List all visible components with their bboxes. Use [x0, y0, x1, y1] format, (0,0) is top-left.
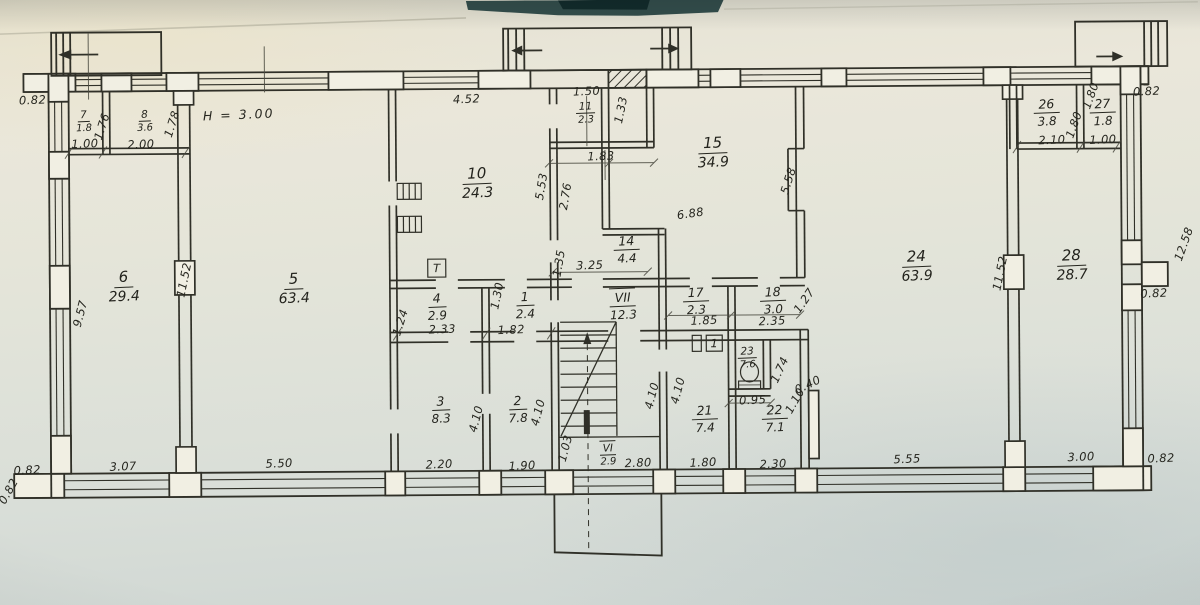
dimension-label: 5.58 — [777, 166, 799, 196]
room-area: 63.4 — [278, 290, 310, 307]
dimension-label: 0.82 — [1133, 84, 1161, 99]
room-number: 3 — [431, 393, 450, 411]
label-layer: 71.883.6629.4563.41024.3112.31534.9144.4… — [0, 0, 1200, 605]
room-area: 3.6 — [137, 122, 153, 134]
room-number: VI — [599, 440, 616, 456]
dimension-label: 2.10 — [1038, 132, 1066, 147]
dimension-label: 2.80 — [624, 455, 652, 470]
room-area: 12.3 — [610, 307, 637, 322]
room-label-7: 71.8 — [75, 105, 92, 135]
room-label-4: 42.9 — [427, 289, 447, 323]
dimension-label: 0.95 — [739, 392, 767, 407]
dimension-label: 11.52 — [989, 255, 1010, 292]
room-label-2: 27.8 — [508, 392, 528, 426]
room-label-VII: VII12.3 — [609, 287, 637, 322]
room-area: 2.9 — [428, 308, 448, 323]
dimension-label: 12.58 — [1171, 225, 1196, 263]
room-label-10: 1024.3 — [461, 164, 494, 202]
dimension-label: 1.82 — [497, 322, 525, 337]
dimension-label: 2.76 — [556, 182, 574, 211]
dimension-label: 0.82 — [19, 92, 47, 107]
dimension-label: 0.82 — [0, 476, 21, 507]
dimension-label: 4.10 — [667, 376, 687, 406]
room-area: 7.4 — [692, 420, 718, 435]
room-number: 17 — [682, 284, 709, 302]
dimension-label: 1.24 — [389, 307, 411, 337]
dimension-label: 1.83 — [587, 148, 615, 163]
room-label-24: 2463.9 — [900, 247, 933, 285]
room-area: 2.9 — [600, 456, 617, 468]
room-area: 2.3 — [576, 114, 596, 126]
room-label-1: 12.4 — [515, 288, 535, 322]
room-number: 24 — [901, 247, 931, 268]
dimension-label: 0.82 — [13, 462, 41, 477]
room-area: 24.3 — [462, 185, 494, 202]
room-number: 8 — [138, 108, 151, 122]
room-number: 2 — [508, 393, 527, 411]
room-number: 4 — [427, 290, 446, 308]
room-number: 28 — [1056, 246, 1086, 267]
dimension-label: 1.27 — [791, 285, 818, 315]
room-area: 1.8 — [1090, 113, 1116, 128]
room-label-23: 237.6 — [737, 341, 758, 371]
dimension-label: 0.82 — [1140, 286, 1168, 301]
dimension-label: 9.57 — [70, 299, 90, 329]
dimension-label: 1.74 — [767, 354, 791, 385]
room-label-15: 1534.9 — [697, 133, 730, 171]
dimension-label: 1.33 — [611, 95, 630, 124]
dimension-label: 1.50 — [573, 84, 601, 99]
dimension-label: 3.07 — [109, 459, 137, 474]
room-area: 7.6 — [738, 359, 758, 371]
dimension-label: 4.10 — [641, 381, 661, 411]
room-area: 1.8 — [76, 123, 92, 135]
room-area: 28.7 — [1056, 267, 1088, 284]
room-label-18: 183.0 — [759, 283, 786, 317]
room-label-26: 263.8 — [1033, 95, 1060, 129]
room-number: 10 — [462, 164, 492, 185]
fixture-label: 1 — [710, 336, 718, 350]
room-number: 5 — [283, 269, 303, 290]
room-label-3: 38.3 — [431, 392, 451, 426]
room-label-5: 563.4 — [278, 269, 311, 307]
room-area: 8.3 — [431, 411, 451, 426]
dimension-label: 2.00 — [127, 137, 155, 152]
dimension-label: 2.33 — [428, 322, 456, 337]
dimension-label: 2.35 — [758, 313, 786, 328]
room-number: 15 — [698, 133, 728, 154]
dimension-label: 5.55 — [893, 451, 921, 466]
dimension-label: 5.53 — [532, 172, 550, 201]
room-number: VII — [609, 287, 636, 307]
dimension-label: 1.30 — [487, 281, 506, 310]
dimension-label: 1.76 — [91, 111, 113, 141]
room-area: 7.1 — [762, 420, 788, 435]
room-number: 1 — [515, 289, 534, 307]
room-number: 26 — [1033, 96, 1060, 114]
dimension-label: 1.90 — [508, 458, 536, 473]
dimension-label: 1.10 — [782, 385, 808, 416]
room-label-28: 2828.7 — [1055, 246, 1088, 284]
room-number: 7 — [77, 109, 90, 123]
dimension-label: 0.82 — [1147, 451, 1175, 466]
photographed-floor-plan: 71.883.6629.4563.41024.3112.31534.9144.4… — [0, 0, 1200, 605]
room-label-11: 112.3 — [575, 96, 596, 126]
room-number: 23 — [737, 345, 757, 359]
room-area: 34.9 — [697, 154, 729, 171]
dimension-label: 1.78 — [161, 109, 183, 139]
dimension-label: 6.88 — [676, 204, 705, 222]
room-number: 14 — [613, 233, 640, 251]
room-area: 4.4 — [614, 251, 640, 266]
room-label-14: 144.4 — [613, 232, 640, 266]
room-area: 63.9 — [901, 268, 933, 285]
dimension-label: 5.50 — [265, 456, 293, 471]
dimension-label: H = 3.00 — [203, 106, 275, 124]
room-number: 21 — [691, 402, 718, 420]
room-area: 3.8 — [1034, 114, 1060, 129]
dimension-label: 11.52 — [173, 261, 194, 298]
room-label-6: 629.4 — [108, 267, 141, 305]
dimension-label: 4.10 — [466, 404, 486, 434]
fixture-label: T — [433, 261, 441, 275]
dimension-label: 2.20 — [425, 457, 453, 472]
dimension-label: 2.30 — [759, 456, 787, 471]
room-area: 7.8 — [508, 411, 528, 426]
room-number: 18 — [759, 284, 786, 302]
dimension-label: 4.10 — [528, 398, 548, 428]
dimension-label: 3.00 — [1067, 449, 1095, 464]
room-label-VI: VI2.9 — [599, 438, 616, 468]
room-number: 6 — [113, 267, 133, 288]
dimension-label: 1.35 — [550, 249, 568, 278]
dimension-label: 1.80 — [689, 455, 717, 470]
room-area: 29.4 — [108, 288, 140, 305]
dimension-label: 1.85 — [690, 313, 718, 328]
dimension-label: 1.03 — [555, 433, 575, 463]
dimension-label: 1.80 — [1063, 110, 1085, 140]
room-number: 11 — [576, 100, 596, 114]
room-label-8: 83.6 — [136, 104, 153, 134]
room-area: 2.4 — [516, 307, 536, 322]
dimension-label: 4.52 — [453, 91, 481, 106]
dimension-label: 3.25 — [576, 258, 604, 273]
dimension-label: 1.00 — [1089, 132, 1117, 147]
room-label-21: 217.4 — [691, 401, 718, 435]
